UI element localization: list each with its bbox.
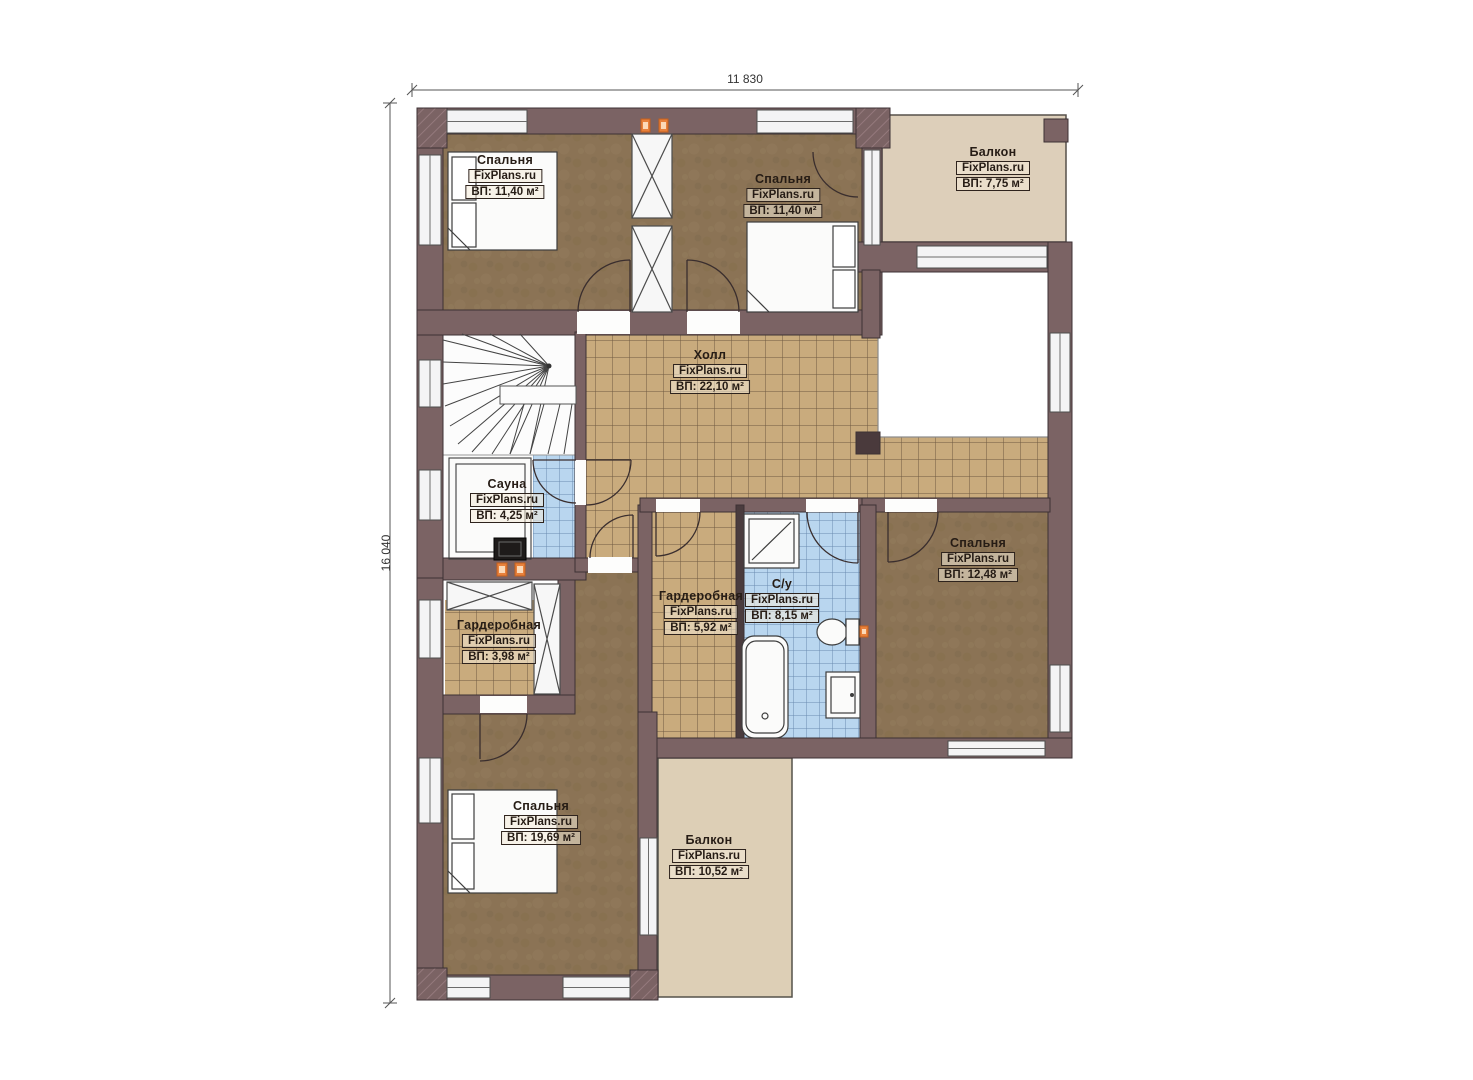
floor-plan-drawing [0,0,1473,1080]
area-box: ВП: 19,69 м² [501,831,581,845]
bathtub-symbol [742,636,788,738]
room-name: Балкон [956,145,1030,159]
room-name: Спальня [938,536,1018,550]
room-label-bedroom-right: Спальня FixPlans.ru ВП: 12,48 м² [938,536,1018,582]
sink-symbol [826,672,860,718]
area-box: ВП: 7,75 м² [956,177,1030,191]
room-label-wardrobe-left: Гардеробная FixPlans.ru ВП: 3,98 м² [457,618,541,664]
watermark-box: FixPlans.ru [664,605,738,619]
room-name: Холл [670,348,750,362]
room-label-bedroom-bottom: Спальня FixPlans.ru ВП: 19,69 м² [501,799,581,845]
area-box: ВП: 4,25 м² [470,509,544,523]
area-box: ВП: 3,98 м² [462,650,536,664]
bed-symbol [747,222,858,312]
dimension-height-label: 16 040 [379,535,393,572]
room-name: Спальня [465,153,544,167]
room-label-bathroom: С/у FixPlans.ru ВП: 8,15 м² [745,577,819,623]
room-name: Спальня [743,172,822,186]
sauna-stove-symbol [494,538,526,560]
room-name: Гардеробная [457,618,541,632]
floor-plan-canvas: 11 830 16 040 Спальня FixPlans.ru ВП: 11… [0,0,1473,1080]
watermark-box: FixPlans.ru [673,364,747,378]
room-label-bedroom-top-left: Спальня FixPlans.ru ВП: 11,40 м² [465,153,544,199]
room-name: С/у [745,577,819,591]
room-name: Балкон [669,833,749,847]
watermark-box: FixPlans.ru [746,188,820,202]
room-label-balcony-top: Балкон FixPlans.ru ВП: 7,75 м² [956,145,1030,191]
room-label-wardrobe-middle: Гардеробная FixPlans.ru ВП: 5,92 м² [659,589,743,635]
wardrobe-closet [447,582,532,610]
area-box: ВП: 11,40 м² [465,185,544,199]
watermark-box: FixPlans.ru [941,552,1015,566]
area-box: ВП: 5,92 м² [664,621,738,635]
area-box: ВП: 22,10 м² [670,380,750,394]
watermark-box: FixPlans.ru [672,849,746,863]
room-label-bedroom-top-right: Спальня FixPlans.ru ВП: 11,40 м² [743,172,822,218]
watermark-box: FixPlans.ru [462,634,536,648]
area-box: ВП: 11,40 м² [743,204,822,218]
watermark-box: FixPlans.ru [468,169,542,183]
room-name: Сауна [470,477,544,491]
room-label-hall: Холл FixPlans.ru ВП: 22,10 м² [670,348,750,394]
room-name: Гардеробная [659,589,743,603]
shower-symbol [744,514,799,568]
area-box: ВП: 8,15 м² [745,609,819,623]
area-box: ВП: 12,48 м² [938,568,1018,582]
watermark-box: FixPlans.ru [470,493,544,507]
area-box: ВП: 10,52 м² [669,865,749,879]
watermark-box: FixPlans.ru [956,161,1030,175]
room-label-balcony-bottom: Балкон FixPlans.ru ВП: 10,52 м² [669,833,749,879]
room-label-sauna: Сауна FixPlans.ru ВП: 4,25 м² [470,477,544,523]
room-name: Спальня [501,799,581,813]
watermark-box: FixPlans.ru [504,815,578,829]
dimension-width-label: 11 830 [727,72,763,86]
toilet-symbol [817,619,859,645]
watermark-box: FixPlans.ru [745,593,819,607]
